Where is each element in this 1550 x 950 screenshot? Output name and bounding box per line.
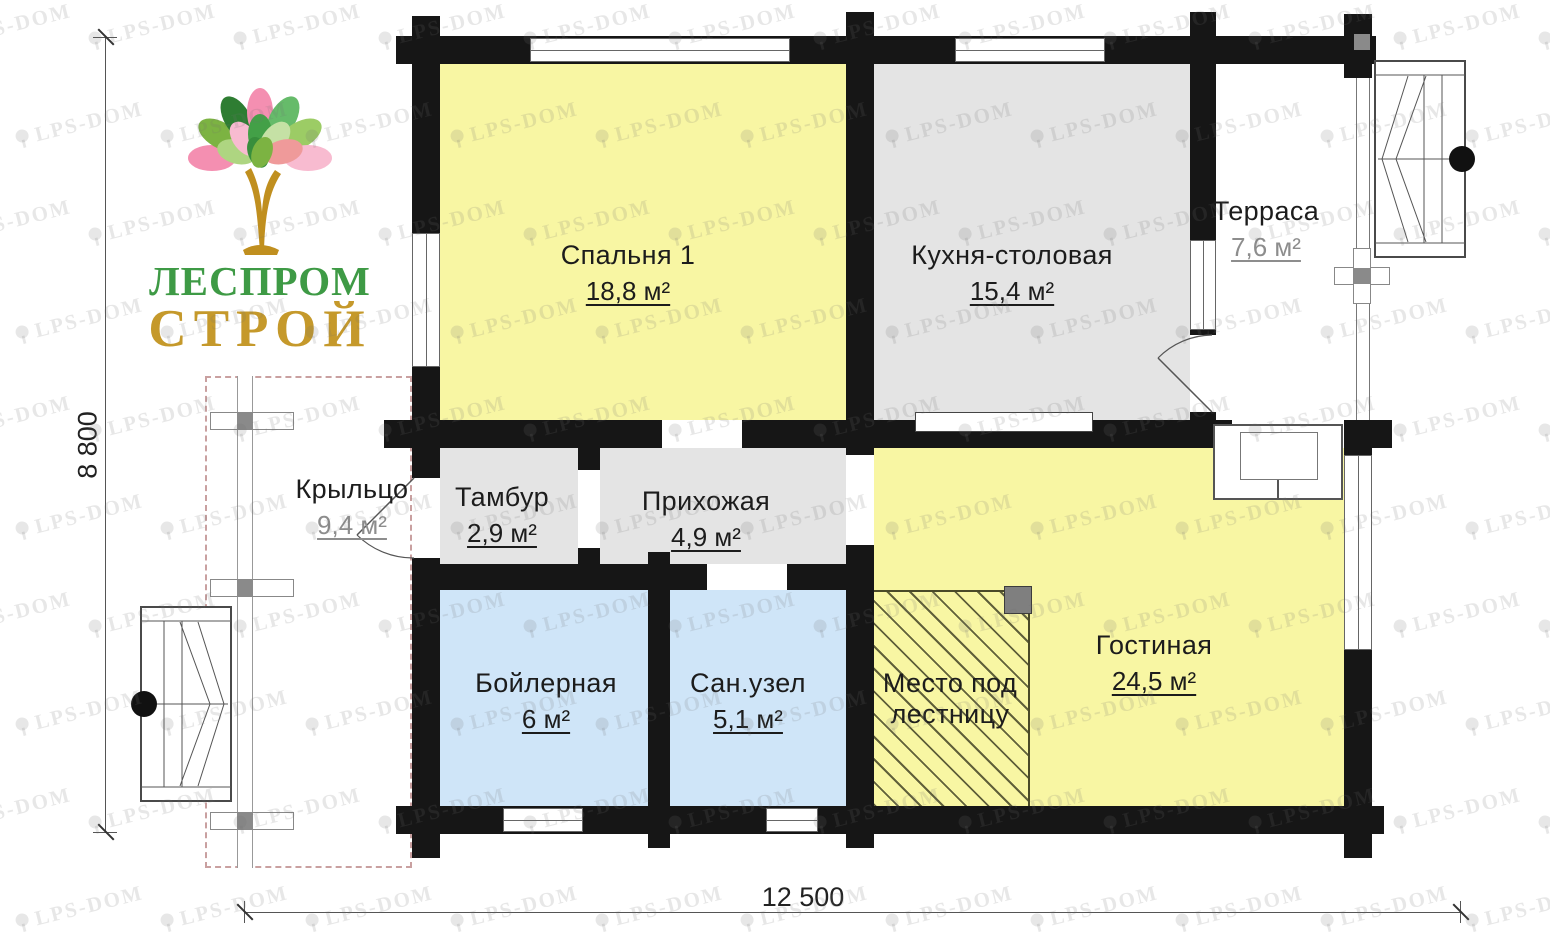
- watermark-tile: LPS-DOM: [301, 880, 436, 936]
- watermark-tile: LPS-DOM: [1534, 194, 1550, 250]
- terrace-railing: [1356, 64, 1370, 420]
- door-opening: [662, 420, 742, 448]
- watermark-tile: LPS-DOM: [1461, 880, 1550, 936]
- logo-text-line1: ЛЕСПРОМ: [138, 260, 382, 303]
- porch-post-track: [237, 376, 253, 868]
- room-name: Сан.узел: [690, 668, 806, 699]
- watermark-tile: LPS-DOM: [11, 488, 146, 544]
- watermark-tile: LPS-DOM: [1316, 880, 1451, 936]
- stairs-space-post: [1004, 586, 1032, 614]
- room-area: 5,1 м²: [690, 704, 806, 735]
- room-name: Кухня-столовая: [911, 240, 1113, 271]
- room-label-terrace: Терраса 7,6 м²: [1213, 196, 1319, 263]
- watermark-tile: LPS-DOM: [1389, 0, 1524, 55]
- room-label-boiler: Бойлерная 6 м²: [475, 668, 617, 735]
- room-name: Прихожая: [642, 486, 770, 517]
- watermark-tile: LPS-DOM: [446, 880, 581, 936]
- floorplan-canvas: Спальня 1 18,8 м² Кухня-столовая 15,4 м²…: [0, 0, 1550, 950]
- watermark-tile: LPS-DOM: [0, 194, 74, 250]
- window: [766, 808, 818, 832]
- room-name: Место под: [883, 668, 1017, 699]
- watermark-tile: LPS-DOM: [229, 0, 364, 55]
- fireplace-inner: [1240, 432, 1318, 480]
- door-opening: [412, 478, 440, 558]
- room-name: Бойлерная: [475, 668, 617, 699]
- window: [530, 38, 790, 62]
- watermark-tile: LPS-DOM: [1461, 292, 1550, 348]
- wall-segment: [412, 16, 440, 858]
- watermark-tile: LPS-DOM: [1534, 390, 1550, 446]
- dimension-height-label: 8 800: [73, 411, 104, 479]
- company-logo: ЛЕСПРОМ СТРОЙ: [138, 80, 382, 356]
- watermark-tile: LPS-DOM: [1461, 96, 1550, 152]
- watermark-tile: LPS-DOM: [881, 880, 1016, 936]
- dimension-line-vertical: [105, 38, 106, 833]
- porch-column-marker: [237, 413, 253, 429]
- watermark-tile: LPS-DOM: [1389, 586, 1524, 642]
- room-name: Гостиная: [1096, 630, 1213, 661]
- watermark-tile: LPS-DOM: [0, 782, 74, 838]
- room-area: 18,8 м²: [561, 276, 696, 307]
- logo-tree-icon: [165, 80, 355, 255]
- watermark-tile: LPS-DOM: [1534, 0, 1550, 55]
- watermark-tile: LPS-DOM: [11, 880, 146, 936]
- room-label-porch: Крыльцо 9,4 м²: [296, 474, 409, 541]
- wall-joint-marker: [1354, 34, 1370, 50]
- wall-segment: [846, 12, 874, 848]
- room-area: 4,9 м²: [642, 522, 770, 553]
- room-area: 7,6 м²: [1213, 232, 1319, 263]
- door-opening: [707, 564, 787, 590]
- room-area: 2,9 м²: [455, 518, 549, 549]
- room-label-bathroom: Сан.узел 5,1 м²: [690, 668, 806, 735]
- room-area: 24,5 м²: [1096, 666, 1213, 697]
- window: [1344, 455, 1372, 650]
- room-label-stairs-space: Место под лестницу: [883, 668, 1017, 730]
- room-area: 9,4 м²: [296, 510, 409, 541]
- logo-text-line2: СТРОЙ: [138, 303, 382, 356]
- watermark-tile: LPS-DOM: [1534, 586, 1550, 642]
- room-label-kitchen: Кухня-столовая 15,4 м²: [911, 240, 1113, 307]
- room-label-tambour: Тамбур 2,9 м²: [455, 482, 549, 549]
- watermark-tile: LPS-DOM: [156, 880, 291, 936]
- watermark-tile: LPS-DOM: [591, 880, 726, 936]
- room-area: 6 м²: [475, 704, 617, 735]
- window: [412, 233, 440, 367]
- staircase-right-icon: [1374, 60, 1466, 258]
- watermark-tile: LPS-DOM: [11, 684, 146, 740]
- room-name: Тамбур: [455, 482, 549, 513]
- wall-segment: [412, 564, 874, 590]
- dimension-width-label: 12 500: [762, 882, 845, 913]
- door-opening: [578, 470, 600, 548]
- window: [503, 808, 583, 832]
- room-area: 15,4 м²: [911, 276, 1113, 307]
- room-label-bedroom: Спальня 1 18,8 м²: [561, 240, 696, 307]
- watermark-tile: LPS-DOM: [11, 292, 146, 348]
- door-opening: [1190, 335, 1216, 412]
- watermark-tile: LPS-DOM: [0, 390, 74, 446]
- door-opening: [846, 455, 874, 545]
- watermark-tile: LPS-DOM: [1534, 782, 1550, 838]
- room-label-living: Гостиная 24,5 м²: [1096, 630, 1213, 697]
- staircase-left-icon: [140, 606, 232, 802]
- wall-segment: [648, 552, 670, 848]
- dimension-line-horizontal: [245, 912, 1461, 913]
- porch-column-marker: [237, 813, 253, 829]
- pass-through-opening: [915, 412, 1093, 432]
- watermark-tile: LPS-DOM: [1171, 880, 1306, 936]
- room-name: лестницу: [883, 699, 1017, 730]
- window: [955, 38, 1105, 62]
- room-name: Крыльцо: [296, 474, 409, 505]
- watermark-tile: LPS-DOM: [11, 96, 146, 152]
- watermark-tile: LPS-DOM: [1461, 488, 1550, 544]
- watermark-tile: LPS-DOM: [1461, 684, 1550, 740]
- watermark-tile: LPS-DOM: [1026, 880, 1161, 936]
- watermark-tile: LPS-DOM: [1389, 390, 1524, 446]
- fireplace-flue-tick: [1277, 480, 1279, 498]
- room-name: Спальня 1: [561, 240, 696, 271]
- room-name: Терраса: [1213, 196, 1319, 227]
- watermark-tile: LPS-DOM: [0, 586, 74, 642]
- porch-column-marker: [237, 580, 253, 596]
- watermark-tile: LPS-DOM: [0, 0, 74, 55]
- terrace-column-marker: [1354, 268, 1370, 284]
- watermark-tile: LPS-DOM: [1389, 782, 1524, 838]
- room-label-hallway: Прихожая 4,9 м²: [642, 486, 770, 553]
